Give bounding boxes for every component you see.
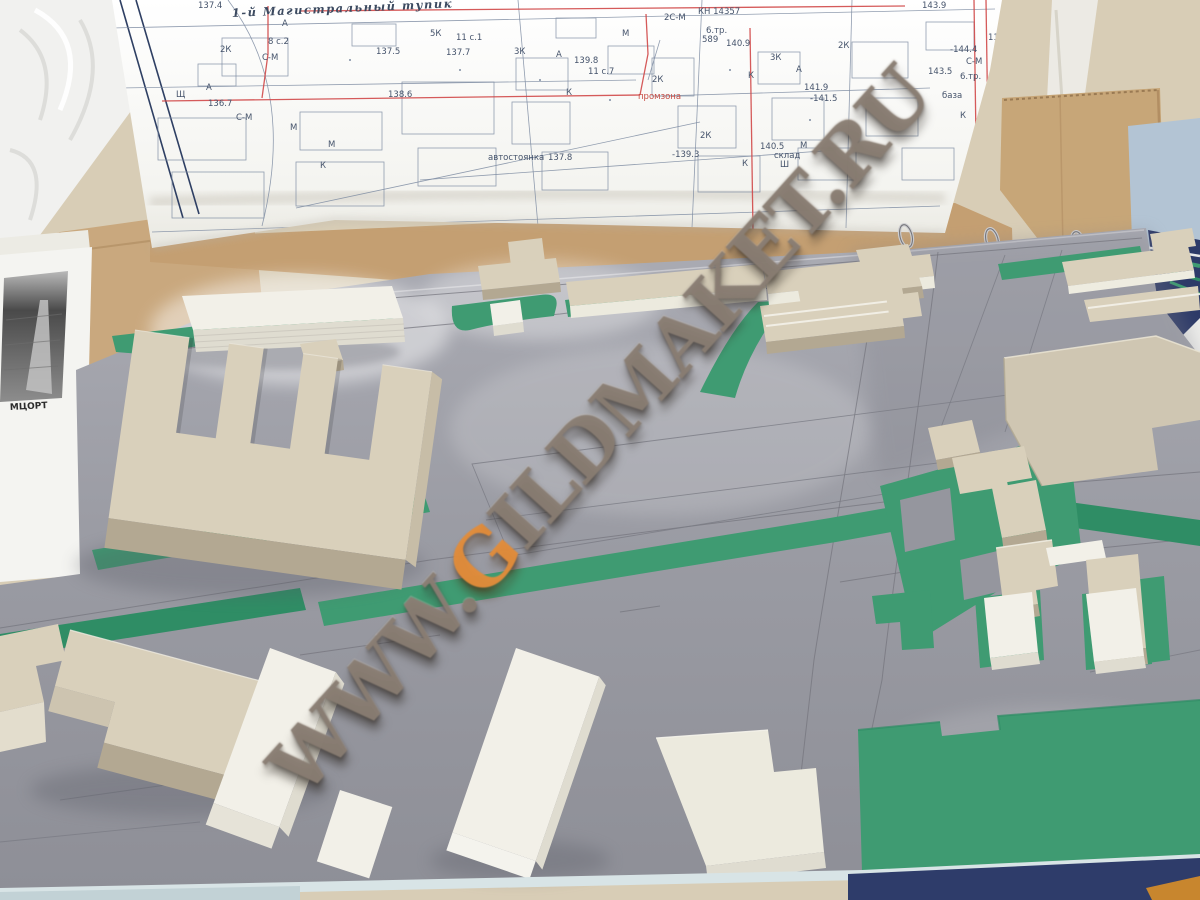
map-label: 138.6 (388, 90, 412, 100)
map-label: М (328, 140, 335, 150)
map-label: М (290, 123, 297, 133)
map-label: -144.4 (950, 45, 977, 55)
map-label: промзона (638, 92, 681, 102)
photo-scene: 1-й Магистральный тупик 137.42КА8 с.2С-М… (0, 0, 1200, 900)
map-label: К (742, 159, 748, 169)
map-label: 2К (220, 45, 231, 55)
map-label: С-М (262, 53, 278, 63)
map-label: 2К (700, 131, 711, 141)
map-label: 3К (770, 53, 781, 63)
map-label: А (282, 19, 288, 29)
map-label: 2К (652, 75, 663, 85)
map-label: 8 с.2 (268, 37, 289, 47)
park-white-house-1 (984, 592, 1040, 670)
map-label: Щ (176, 90, 185, 100)
map-label: 136.7 (208, 99, 232, 109)
map-label: автостоянка (488, 153, 544, 163)
map-label: -139.3 (672, 150, 699, 160)
map-label: КН 14357 (698, 7, 740, 17)
map-label: 589 (702, 35, 718, 45)
map-label: А (796, 65, 802, 75)
map-label: 137.7 (446, 48, 470, 58)
map-label: 143.5 (928, 67, 952, 77)
map-label: 5К (430, 29, 441, 39)
map-label: 11 с.7 (588, 67, 614, 77)
map-label: 11 с.1 (456, 33, 482, 43)
photo-caption: МЦОРТ (10, 401, 49, 413)
map-label: А (556, 50, 562, 60)
map-label: 137.8 (548, 153, 572, 163)
map-label: 137.5 (376, 47, 400, 57)
map-label: М (622, 29, 629, 39)
park-white-house-2 (1086, 588, 1146, 674)
white-stack-building (182, 286, 405, 352)
map-label: К (566, 88, 572, 98)
map-label: 139.8 (574, 56, 598, 66)
map-label: К (748, 71, 754, 81)
map-label: 2С-М (664, 13, 686, 23)
map-label: К (320, 161, 326, 171)
map-label: К (960, 111, 966, 121)
photo-image (0, 271, 68, 402)
map-label: С-М (236, 113, 252, 123)
cluster-cube (886, 292, 922, 320)
map-label: 140.9 (726, 39, 750, 49)
map-label: 143.9 (922, 1, 946, 11)
map-label: С-М (966, 57, 982, 67)
map-label: база (942, 91, 962, 101)
map-label: 6.тр. (960, 72, 981, 82)
map-label: 2К (838, 41, 849, 51)
small-white-building (490, 300, 524, 336)
map-label: 141.9 (804, 83, 828, 93)
map-label: А (206, 83, 212, 93)
map-label: 3К (514, 47, 525, 57)
map-label: 137.4 (198, 1, 222, 11)
